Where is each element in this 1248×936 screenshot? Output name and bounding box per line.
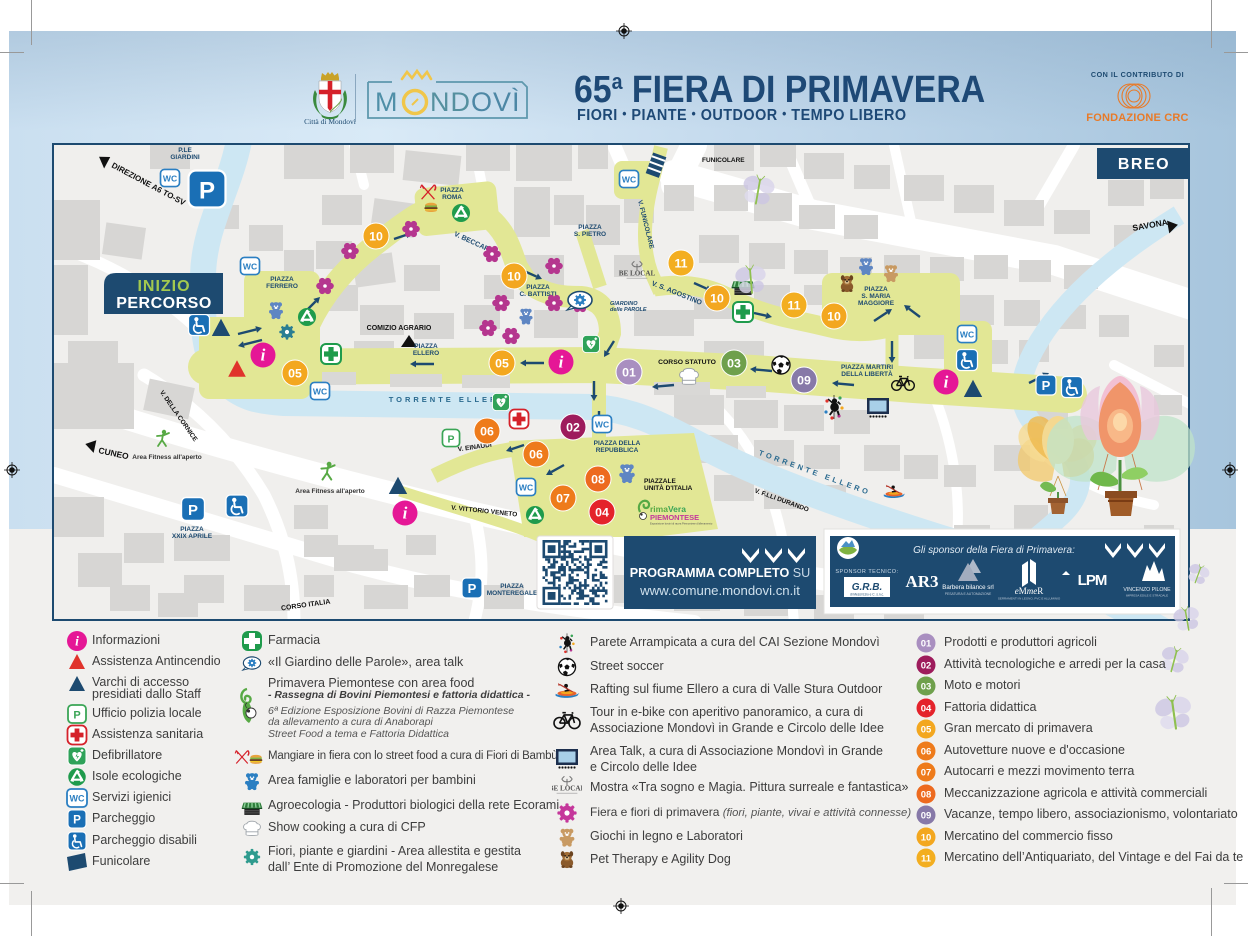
svg-text:G.R.B.: G.R.B.	[852, 582, 883, 593]
svg-text:i: i	[559, 353, 564, 372]
svg-text:WC: WC	[243, 261, 257, 271]
svg-text:P: P	[468, 581, 477, 596]
svg-text:INIZIO: INIZIO	[137, 278, 190, 295]
svg-text:P: P	[73, 814, 81, 827]
svg-text:10: 10	[507, 270, 521, 284]
svg-text:MAGGIORE: MAGGIORE	[858, 300, 895, 307]
svg-text:10: 10	[710, 292, 724, 306]
svg-text:ELLERO: ELLERO	[413, 350, 439, 357]
svg-text:09: 09	[797, 374, 811, 388]
svg-text:PROGRAMMA COMPLETO SU: PROGRAMMA COMPLETO SU	[630, 566, 811, 580]
svg-text:PIAZZA: PIAZZA	[414, 343, 438, 350]
svg-text:06: 06	[480, 425, 494, 439]
svg-text:10: 10	[921, 832, 932, 843]
svg-text:S. MARIA: S. MARIA	[861, 293, 891, 300]
svg-text:08: 08	[591, 473, 605, 487]
svg-text:S. PIETRO: S. PIETRO	[574, 231, 606, 238]
svg-text:PIAZZA: PIAZZA	[270, 276, 294, 283]
svg-text:PIAZZA: PIAZZA	[578, 224, 602, 231]
svg-text:02: 02	[566, 421, 580, 435]
svg-text:COMIZIO AGRARIO: COMIZIO AGRARIO	[367, 325, 432, 332]
svg-text:Barbera bilance srl: Barbera bilance srl	[942, 584, 994, 591]
svg-text:di Messi Ezio e C. s.n.c.: di Messi Ezio e C. s.n.c.	[850, 593, 884, 597]
svg-text:11: 11	[921, 853, 932, 864]
svg-text:WC: WC	[519, 482, 533, 492]
svg-text:WC: WC	[70, 794, 85, 804]
svg-text:XXIX APRILE: XXIX APRILE	[172, 533, 213, 540]
svg-text:VINCENZO PILONE: VINCENZO PILONE	[1123, 587, 1171, 593]
svg-text:P.LE: P.LE	[178, 147, 192, 154]
svg-text:i: i	[261, 346, 266, 365]
svg-text:Gli sponsor della Fiera di Pri: Gli sponsor della Fiera di Primavera:	[913, 545, 1075, 556]
svg-text:05: 05	[495, 357, 509, 371]
svg-text:i: i	[944, 373, 949, 392]
svg-text:04: 04	[921, 703, 932, 714]
svg-text:06: 06	[921, 746, 932, 757]
svg-text:i: i	[75, 633, 79, 648]
svg-text:WC: WC	[163, 173, 177, 183]
svg-text:Area Fitness all'aperto: Area Fitness all'aperto	[132, 454, 201, 461]
svg-text:i: i	[403, 504, 408, 523]
svg-text:P: P	[448, 434, 455, 445]
svg-text:09: 09	[921, 810, 932, 821]
svg-text:FUNICOLARE: FUNICOLARE	[702, 157, 745, 164]
svg-text:PIAZZA: PIAZZA	[440, 187, 464, 194]
svg-text:BE LOCAL: BE LOCAL	[619, 270, 656, 278]
svg-text:PERCORSO: PERCORSO	[116, 295, 212, 312]
svg-text:www.comune.mondovi.cn.it: www.comune.mondovi.cn.it	[639, 583, 800, 598]
svg-text:PIAZZA MARTIRI: PIAZZA MARTIRI	[841, 364, 893, 371]
svg-text:WC: WC	[960, 329, 974, 339]
svg-text:11: 11	[674, 257, 687, 271]
svg-text:BE LOCAL: BE LOCAL	[552, 785, 582, 793]
svg-text:CORSO STATUTO: CORSO STATUTO	[658, 359, 716, 366]
svg-text:SERRAMENTI IN LEGNO, PVC E ALL: SERRAMENTI IN LEGNO, PVC E ALLUMINIO	[998, 597, 1061, 601]
svg-text:PIAZZA DELLA: PIAZZA DELLA	[594, 440, 641, 447]
svg-text:AR3: AR3	[905, 572, 938, 591]
svg-text:IMPRESA EDILE E STRADALE: IMPRESA EDILE E STRADALE	[1126, 594, 1168, 598]
svg-text:M: M	[375, 87, 399, 117]
svg-text:PIAZZA: PIAZZA	[500, 583, 524, 590]
svg-text:ROMA: ROMA	[442, 194, 462, 201]
svg-text:P: P	[199, 177, 215, 204]
svg-text:WC: WC	[622, 174, 636, 184]
svg-text:NDOVÌ: NDOVÌ	[430, 87, 521, 117]
svg-text:06: 06	[529, 448, 543, 462]
svg-text:P: P	[188, 502, 198, 519]
svg-text:PIAZZA: PIAZZA	[526, 284, 550, 291]
svg-text:04: 04	[595, 506, 609, 520]
svg-text:03: 03	[727, 357, 741, 371]
svg-text:02: 02	[921, 660, 932, 671]
svg-text:03: 03	[921, 681, 932, 692]
svg-text:10: 10	[369, 230, 383, 244]
svg-text:PIEMONTESE: PIEMONTESE	[650, 513, 699, 522]
svg-text:BREO: BREO	[1118, 156, 1170, 173]
svg-text:MONTEREGALE: MONTEREGALE	[487, 590, 538, 597]
svg-text:P: P	[73, 710, 80, 722]
svg-text:07: 07	[921, 767, 932, 778]
svg-text:05: 05	[921, 724, 932, 735]
svg-text:FERRERO: FERRERO	[266, 283, 298, 290]
svg-text:WC: WC	[313, 386, 327, 396]
svg-text:05: 05	[288, 367, 302, 381]
svg-text:01: 01	[921, 638, 932, 649]
svg-text:eMmeR: eMmeR	[1015, 586, 1044, 596]
svg-text:PESATURA E AUTOMAZIONE: PESATURA E AUTOMAZIONE	[945, 592, 992, 596]
svg-text:01: 01	[622, 366, 636, 380]
svg-text:11: 11	[787, 299, 800, 313]
svg-text:Area Fitness all'aperto: Area Fitness all'aperto	[295, 488, 364, 495]
svg-text:SPONSOR TECNICO:: SPONSOR TECNICO:	[835, 569, 898, 575]
svg-text:LPM: LPM	[1078, 572, 1107, 589]
svg-text:UNITÀ D'ITALIA: UNITÀ D'ITALIA	[644, 483, 693, 492]
svg-text:GIARDINI: GIARDINI	[170, 154, 199, 161]
svg-text:07: 07	[556, 492, 570, 506]
svg-text:REPUBBLICA: REPUBBLICA	[596, 447, 639, 454]
svg-text:PIAZZA: PIAZZA	[180, 526, 204, 533]
svg-text:DELLA LIBERTÀ: DELLA LIBERTÀ	[841, 369, 893, 378]
svg-text:Esposizione bovini di razza Pi: Esposizione bovini di razza Piemontese d…	[650, 522, 713, 526]
svg-text:10: 10	[827, 310, 841, 324]
svg-text:08: 08	[921, 789, 932, 800]
svg-text:delle PAROLE: delle PAROLE	[610, 307, 647, 313]
svg-text:PIAZZA: PIAZZA	[864, 286, 888, 293]
svg-text:TORRENTE ELLERO: TORRENTE ELLERO	[389, 395, 508, 404]
svg-text:WC: WC	[595, 419, 609, 429]
svg-text:PIAZZALE: PIAZZALE	[644, 478, 676, 485]
